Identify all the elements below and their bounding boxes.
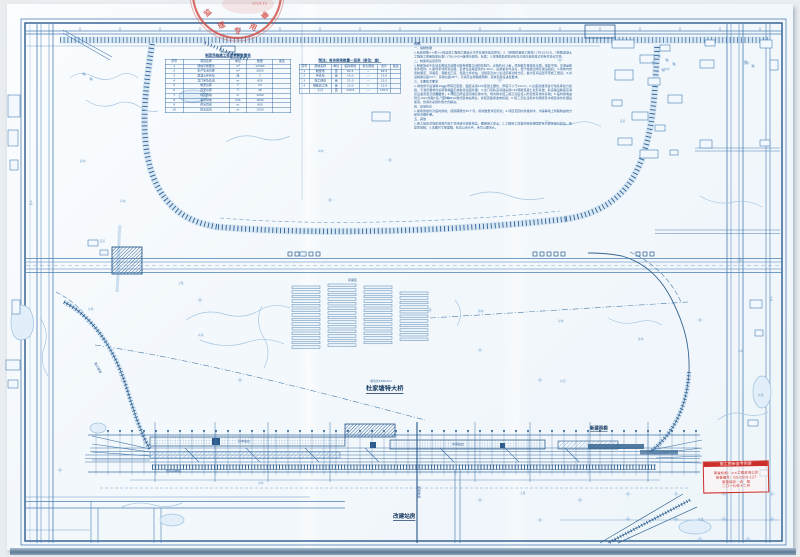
- bottom-roads: [26, 501, 780, 543]
- circular-seal: [190, 0, 284, 41]
- scan-edge: [10, 548, 796, 555]
- scanned-drawing-page: { "drawing": { "type": "railway-station-…: [0, 0, 800, 557]
- site-plan-linework: [0, 0, 800, 557]
- left-road: [30, 24, 53, 543]
- right-approach-curve: [588, 253, 689, 452]
- station-band: [26, 422, 702, 543]
- beam-storage-yard: [292, 284, 428, 348]
- land-boundary: [56, 252, 688, 420]
- left-approach-curve: [64, 302, 150, 449]
- yard-exit-tracks: [600, 494, 697, 543]
- loop-track: [144, 44, 657, 231]
- railway-corridor-top: [26, 25, 782, 60]
